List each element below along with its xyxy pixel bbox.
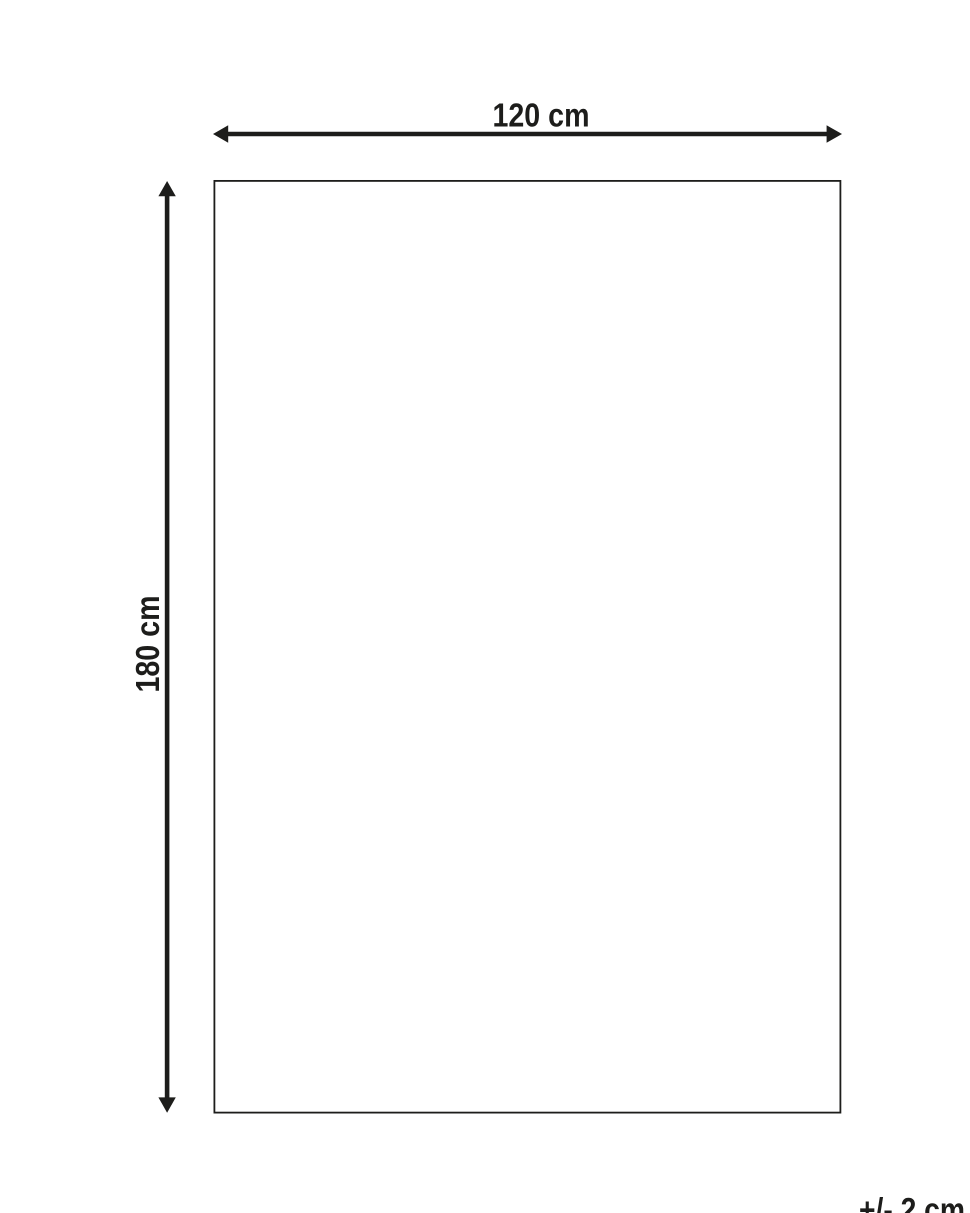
svg-text:+/- 2 cm: +/- 2 cm [859, 1192, 965, 1213]
svg-text:180 cm: 180 cm [130, 596, 167, 693]
svg-text:120 cm: 120 cm [493, 98, 590, 135]
